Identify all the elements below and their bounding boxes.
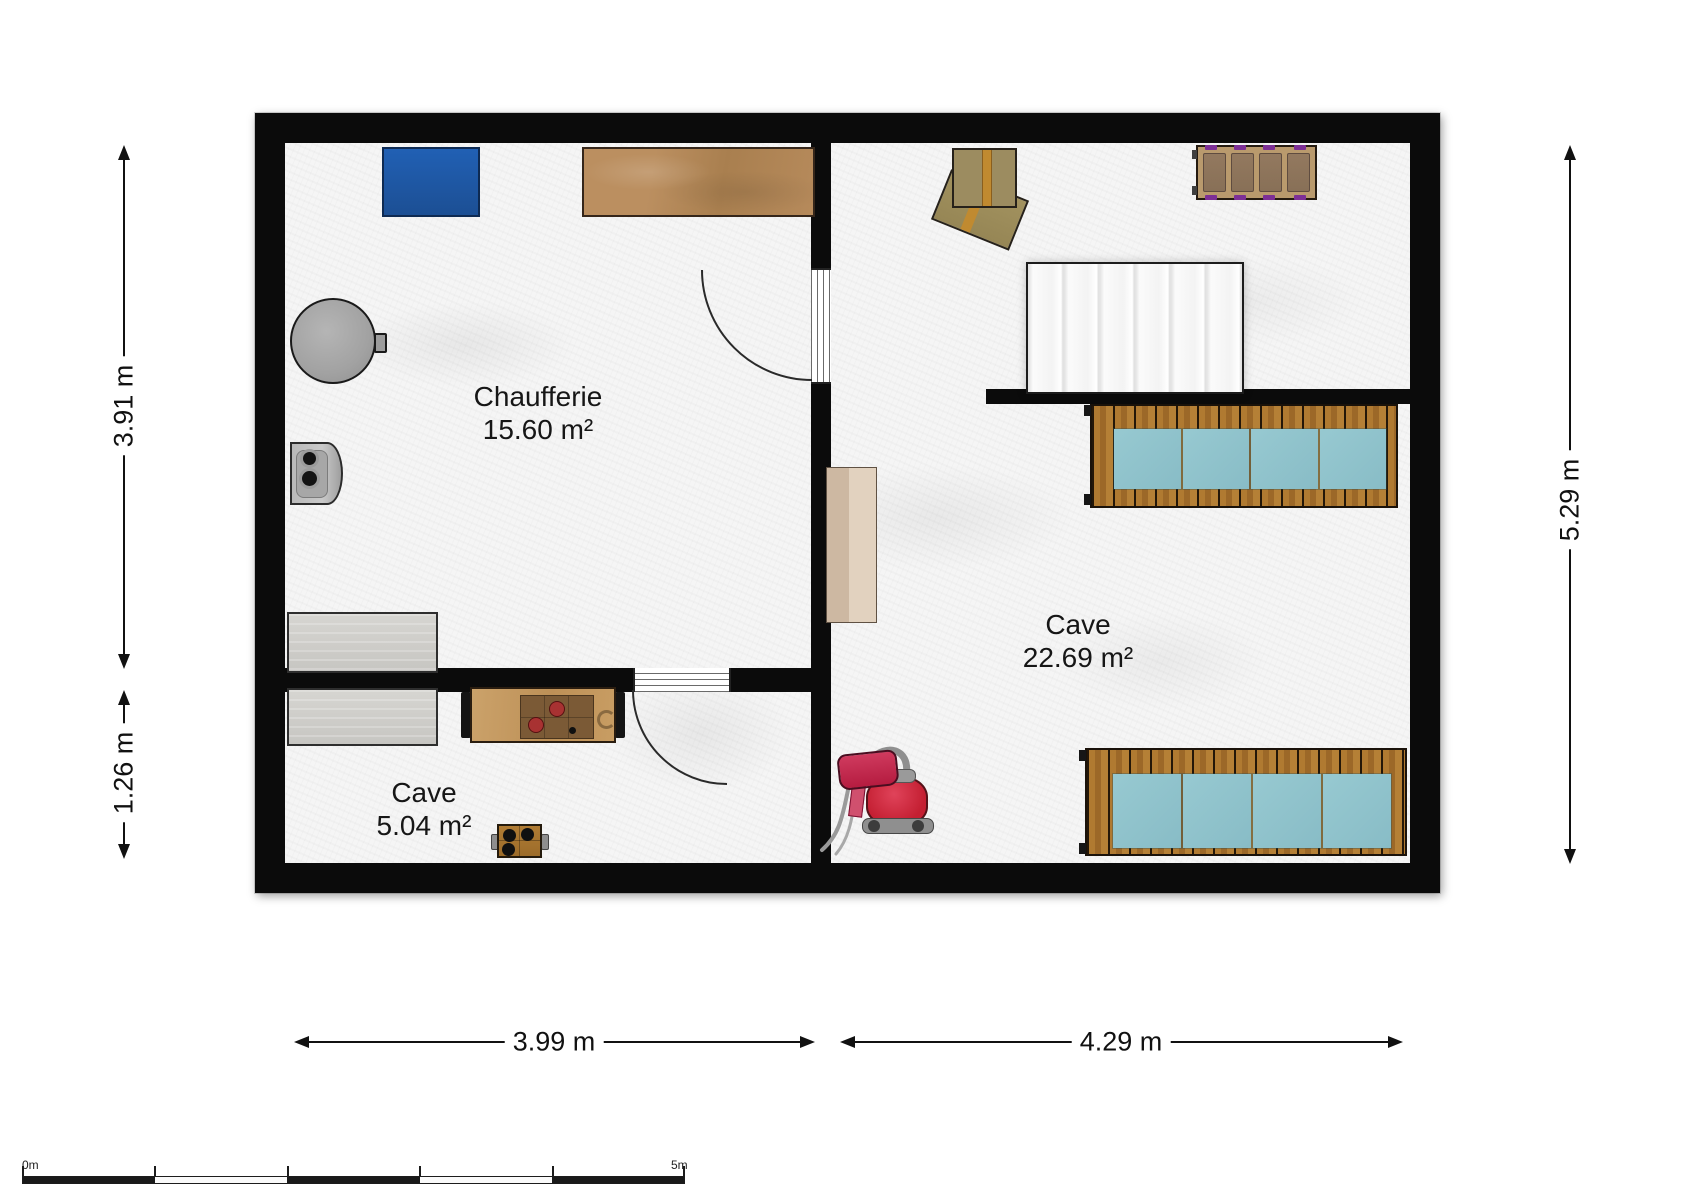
door-swing-arc <box>633 690 727 784</box>
room-label-cave-small: Cave 5.04 m² <box>274 776 574 842</box>
room-name: Chaufferie <box>388 380 688 413</box>
room-label-chaufferie: Chaufferie 15.60 m² <box>388 380 688 446</box>
scale-segment <box>552 1177 684 1183</box>
arrowhead <box>1564 145 1576 160</box>
dimension-label-left-lower: 1.26 m <box>108 724 141 823</box>
room-area: 5.04 m² <box>274 809 574 842</box>
scale-segment <box>23 1177 155 1183</box>
scale-start-label: 0m <box>22 1158 39 1172</box>
vacuum-wheel <box>868 820 880 832</box>
scale-segment <box>287 1177 419 1183</box>
dimension-label-bottom-left: 3.99 m <box>505 1026 604 1059</box>
door-swing-arc <box>702 270 812 380</box>
room-name: Cave <box>928 608 1228 641</box>
floor-plan-page: Chaufferie 15.60 m² Cave 22.69 m² Cave 5… <box>0 0 1696 1200</box>
room-area: 22.69 m² <box>928 641 1228 674</box>
dimension-label-bottom-right: 4.29 m <box>1072 1026 1171 1059</box>
arrowhead <box>118 654 130 669</box>
dimension-label-right: 5.29 m <box>1554 451 1587 550</box>
arrowhead <box>118 690 130 705</box>
scale-end-label: 5m <box>671 1158 688 1172</box>
arrowhead <box>118 844 130 859</box>
room-area: 15.60 m² <box>388 413 688 446</box>
arrowhead <box>1388 1036 1403 1048</box>
dimension-label-left-upper: 3.91 m <box>108 357 141 456</box>
room-name: Cave <box>274 776 574 809</box>
arrowhead <box>800 1036 815 1048</box>
scale-segment <box>155 1177 287 1183</box>
vacuum-wheel <box>912 820 924 832</box>
scale-bar <box>22 1176 685 1184</box>
arrowhead <box>840 1036 855 1048</box>
vacuum-head <box>836 749 899 791</box>
arrowhead <box>294 1036 309 1048</box>
scale-segment <box>420 1177 552 1183</box>
arrowhead <box>118 145 130 160</box>
arrowhead <box>1564 849 1576 864</box>
room-label-cave-large: Cave 22.69 m² <box>928 608 1228 674</box>
overlay-lines <box>0 0 1696 1200</box>
